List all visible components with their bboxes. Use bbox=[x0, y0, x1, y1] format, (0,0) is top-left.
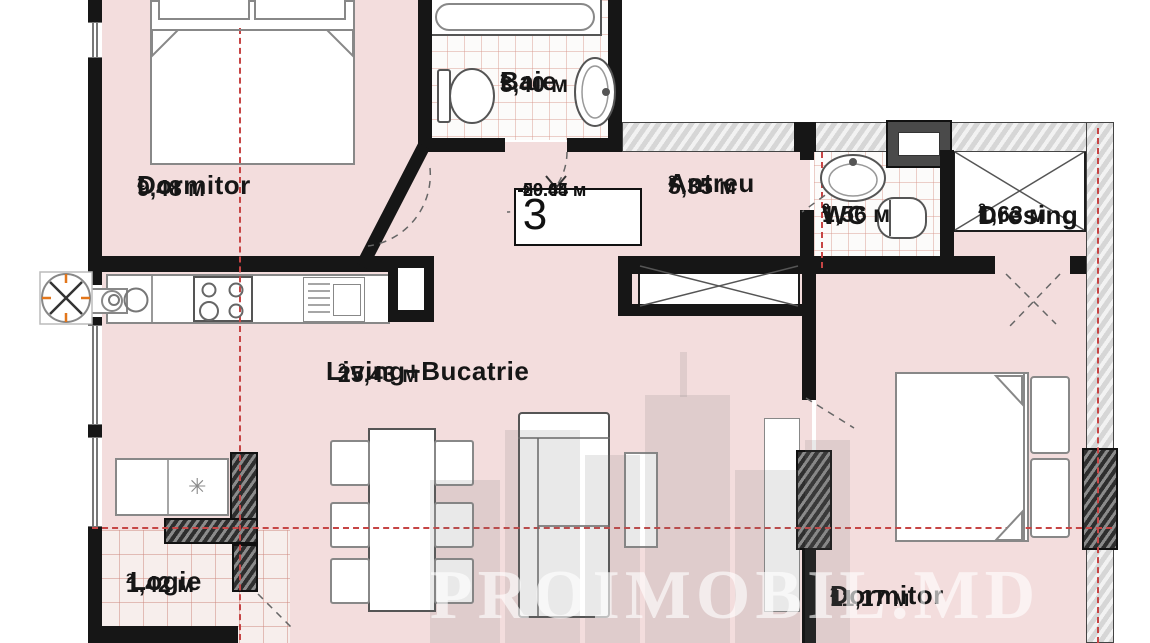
bed-double bbox=[895, 372, 1029, 542]
chair bbox=[434, 502, 474, 548]
shaft-inner bbox=[898, 132, 940, 156]
wall bbox=[567, 138, 622, 152]
wall-hatched-dark bbox=[1082, 448, 1118, 550]
bathtub bbox=[428, 0, 602, 36]
logie-window-pier bbox=[232, 544, 258, 592]
pillow bbox=[158, 0, 250, 20]
wall bbox=[88, 626, 238, 643]
pillow bbox=[1030, 376, 1070, 454]
wall bbox=[88, 58, 102, 285]
axis-line bbox=[92, 527, 1112, 529]
wall bbox=[800, 150, 814, 160]
window bbox=[88, 22, 102, 58]
wall bbox=[940, 150, 954, 266]
floor-dresing-door-gap bbox=[995, 256, 1070, 276]
tv-stand bbox=[624, 452, 658, 548]
washing-unit bbox=[115, 458, 229, 516]
watermark-text: PROIMOBIL.MD bbox=[320, 556, 1150, 636]
chair bbox=[330, 502, 370, 548]
axis-line bbox=[239, 28, 241, 640]
wall bbox=[802, 274, 816, 400]
wall bbox=[88, 425, 102, 437]
chair bbox=[434, 440, 474, 486]
wall bbox=[88, 317, 102, 325]
window bbox=[88, 437, 102, 527]
wall bbox=[622, 304, 802, 316]
pillow bbox=[254, 0, 346, 20]
bed-double bbox=[150, 0, 355, 165]
chair bbox=[330, 440, 370, 486]
wall bbox=[418, 138, 505, 152]
wall bbox=[418, 0, 432, 152]
wall bbox=[100, 256, 390, 272]
floor-plan: ✳ bbox=[0, 0, 1150, 643]
wall bbox=[618, 256, 995, 274]
fridge bbox=[333, 284, 361, 316]
wall bbox=[88, 0, 102, 22]
wall-hatched-dark bbox=[796, 450, 832, 550]
stove bbox=[193, 276, 253, 322]
pier-inner bbox=[398, 268, 424, 310]
duct-pipe bbox=[60, 288, 128, 314]
wall bbox=[608, 0, 622, 152]
wall-hatched bbox=[622, 122, 1092, 152]
apartment-info-box: 3 59.44 м2 20.65 м2 bbox=[514, 188, 642, 246]
snowflake-icon: ✳ bbox=[188, 474, 206, 500]
pillow bbox=[1030, 458, 1070, 538]
window bbox=[88, 325, 102, 425]
wall-hatched-dark bbox=[164, 518, 258, 544]
wall bbox=[794, 122, 816, 152]
